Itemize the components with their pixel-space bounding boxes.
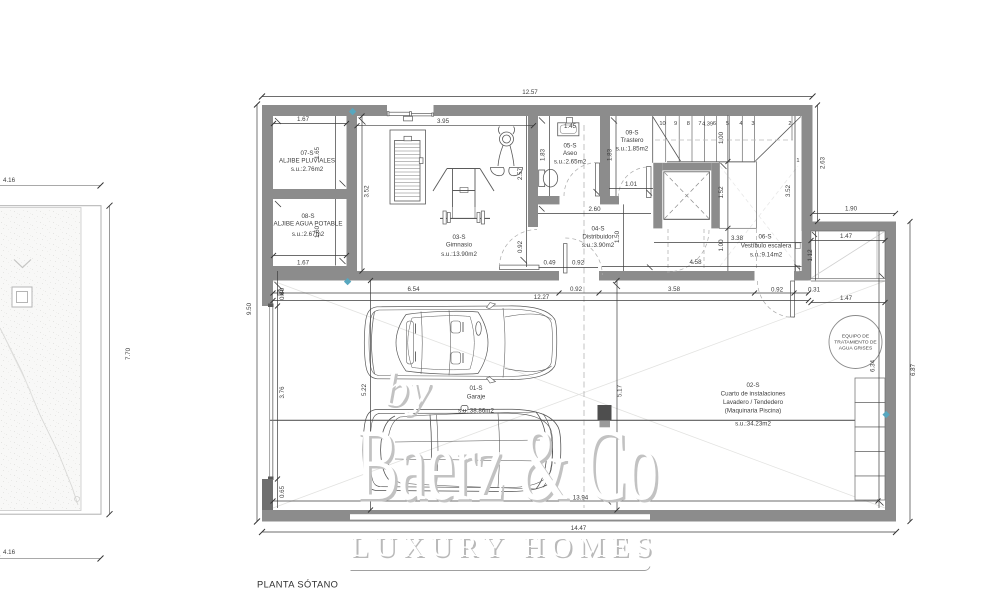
svg-text:s.u.:3.90m2: s.u.:3.90m2 [582, 242, 615, 249]
svg-text:2: 2 [788, 121, 791, 127]
svg-text:4: 4 [739, 121, 742, 127]
svg-text:09-S: 09-S [625, 130, 638, 137]
svg-text:1.00: 1.00 [718, 239, 725, 252]
svg-text:s.u.:34.23m2: s.u.:34.23m2 [735, 421, 771, 428]
svg-text:6.54: 6.54 [407, 286, 420, 293]
svg-text:Lavadero / Tendedero: Lavadero / Tendedero [723, 399, 784, 406]
svg-text:s.u.:9.14m2: s.u.:9.14m2 [750, 252, 783, 259]
svg-text:0.92: 0.92 [771, 287, 784, 294]
svg-text:07-S: 07-S [300, 150, 313, 157]
svg-text:1.47: 1.47 [840, 295, 853, 302]
svg-text:1.83: 1.83 [540, 148, 547, 161]
svg-text:s.u.:13.90m2: s.u.:13.90m2 [441, 251, 477, 258]
svg-text:TRATAMIENTO DE: TRATAMIENTO DE [834, 340, 877, 346]
svg-text:0.92: 0.92 [517, 240, 524, 253]
svg-text:5.22: 5.22 [361, 383, 368, 396]
svg-text:08-S: 08-S [301, 213, 314, 220]
svg-text:1.67: 1.67 [297, 116, 310, 123]
svg-text:0.49: 0.49 [543, 260, 556, 267]
svg-text:03-S: 03-S [452, 234, 465, 241]
svg-text:ALJIBE AGUA POTABLE: ALJIBE AGUA POTABLE [273, 221, 342, 228]
svg-text:Trastero: Trastero [621, 137, 644, 144]
svg-text:1.01: 1.01 [625, 181, 638, 188]
svg-text:4.58: 4.58 [689, 259, 702, 266]
svg-text:2.60: 2.60 [588, 206, 601, 213]
svg-text:0.80: 0.80 [279, 287, 286, 300]
svg-text:3.95: 3.95 [437, 118, 450, 125]
svg-text:3.58: 3.58 [668, 286, 681, 293]
svg-text:EQUIPO DE: EQUIPO DE [842, 334, 870, 340]
svg-text:2.63: 2.63 [820, 156, 827, 169]
svg-text:Aseo: Aseo [563, 150, 578, 157]
svg-text:4.16: 4.16 [3, 177, 16, 184]
svg-text:3: 3 [751, 121, 754, 127]
svg-text:9.50: 9.50 [246, 302, 253, 315]
svg-text:0.92: 0.92 [572, 260, 585, 267]
svg-text:1.65: 1.65 [314, 146, 321, 159]
svg-text:04-S: 04-S [591, 226, 604, 233]
svg-text:1.90: 1.90 [845, 206, 858, 213]
svg-text:5.17: 5.17 [617, 384, 624, 397]
svg-text:1.60: 1.60 [314, 225, 321, 238]
svg-text:3.38: 3.38 [731, 235, 744, 242]
svg-text:1.00: 1.00 [718, 131, 725, 144]
svg-text:Gimnasio: Gimnasio [446, 242, 473, 249]
svg-text:7.70: 7.70 [125, 347, 132, 360]
svg-text:6: 6 [713, 121, 716, 127]
svg-text:0.65: 0.65 [279, 485, 286, 498]
svg-text:10: 10 [659, 121, 665, 127]
svg-text:1.47: 1.47 [840, 233, 853, 240]
svg-text:(Maquinaria Piscina): (Maquinaria Piscina) [725, 408, 781, 415]
svg-text:05-S: 05-S [563, 143, 576, 150]
svg-text:6.34: 6.34 [870, 359, 877, 372]
svg-text:12.27: 12.27 [534, 294, 550, 301]
svg-text:1.52: 1.52 [718, 186, 725, 199]
svg-text:s.u.:2.65m2: s.u.:2.65m2 [554, 159, 587, 166]
svg-text:3.76: 3.76 [279, 386, 286, 399]
svg-text:1.50: 1.50 [614, 230, 621, 243]
svg-text:01-S: 01-S [469, 385, 482, 392]
svg-text:4.16: 4.16 [3, 549, 16, 556]
svg-text:Vestíbulo escalera: Vestíbulo escalera [741, 243, 792, 250]
svg-text:4.39: 4.39 [702, 122, 713, 128]
svg-text:02-S: 02-S [746, 382, 759, 389]
svg-text:2.57: 2.57 [517, 167, 524, 180]
svg-text:s.u.:1.85m2: s.u.:1.85m2 [616, 146, 649, 153]
svg-text:0.31: 0.31 [808, 287, 821, 294]
svg-text:1.83: 1.83 [607, 148, 614, 161]
svg-text:ALJIBE PLUVIALES: ALJIBE PLUVIALES [279, 158, 335, 165]
svg-text:0.92: 0.92 [570, 286, 583, 293]
svg-text:PLANTA SÓTANO: PLANTA SÓTANO [257, 580, 338, 590]
svg-text:Baerz & Co: Baerz & Co [356, 408, 658, 522]
svg-text:06-S: 06-S [758, 234, 771, 241]
svg-text:6.87: 6.87 [910, 363, 917, 376]
svg-text:1.67: 1.67 [297, 260, 310, 267]
svg-text:12.57: 12.57 [522, 89, 538, 96]
svg-text:Distribuidor: Distribuidor [582, 234, 613, 241]
svg-text:5: 5 [726, 121, 729, 127]
svg-text:Cuarto de instalaciones: Cuarto de instalaciones [721, 391, 786, 398]
svg-text:1: 1 [796, 158, 799, 164]
svg-text:1.12: 1.12 [807, 249, 814, 262]
svg-text:Garaje: Garaje [467, 394, 486, 401]
svg-text:3.52: 3.52 [785, 184, 792, 197]
svg-text:s.u.:2.76m2: s.u.:2.76m2 [291, 166, 324, 173]
svg-text:1.45: 1.45 [564, 123, 577, 130]
svg-text:3.52: 3.52 [364, 185, 371, 198]
svg-text:9: 9 [674, 121, 677, 127]
svg-text:8: 8 [687, 121, 690, 127]
svg-text:AGUA GRISES: AGUA GRISES [839, 346, 873, 352]
